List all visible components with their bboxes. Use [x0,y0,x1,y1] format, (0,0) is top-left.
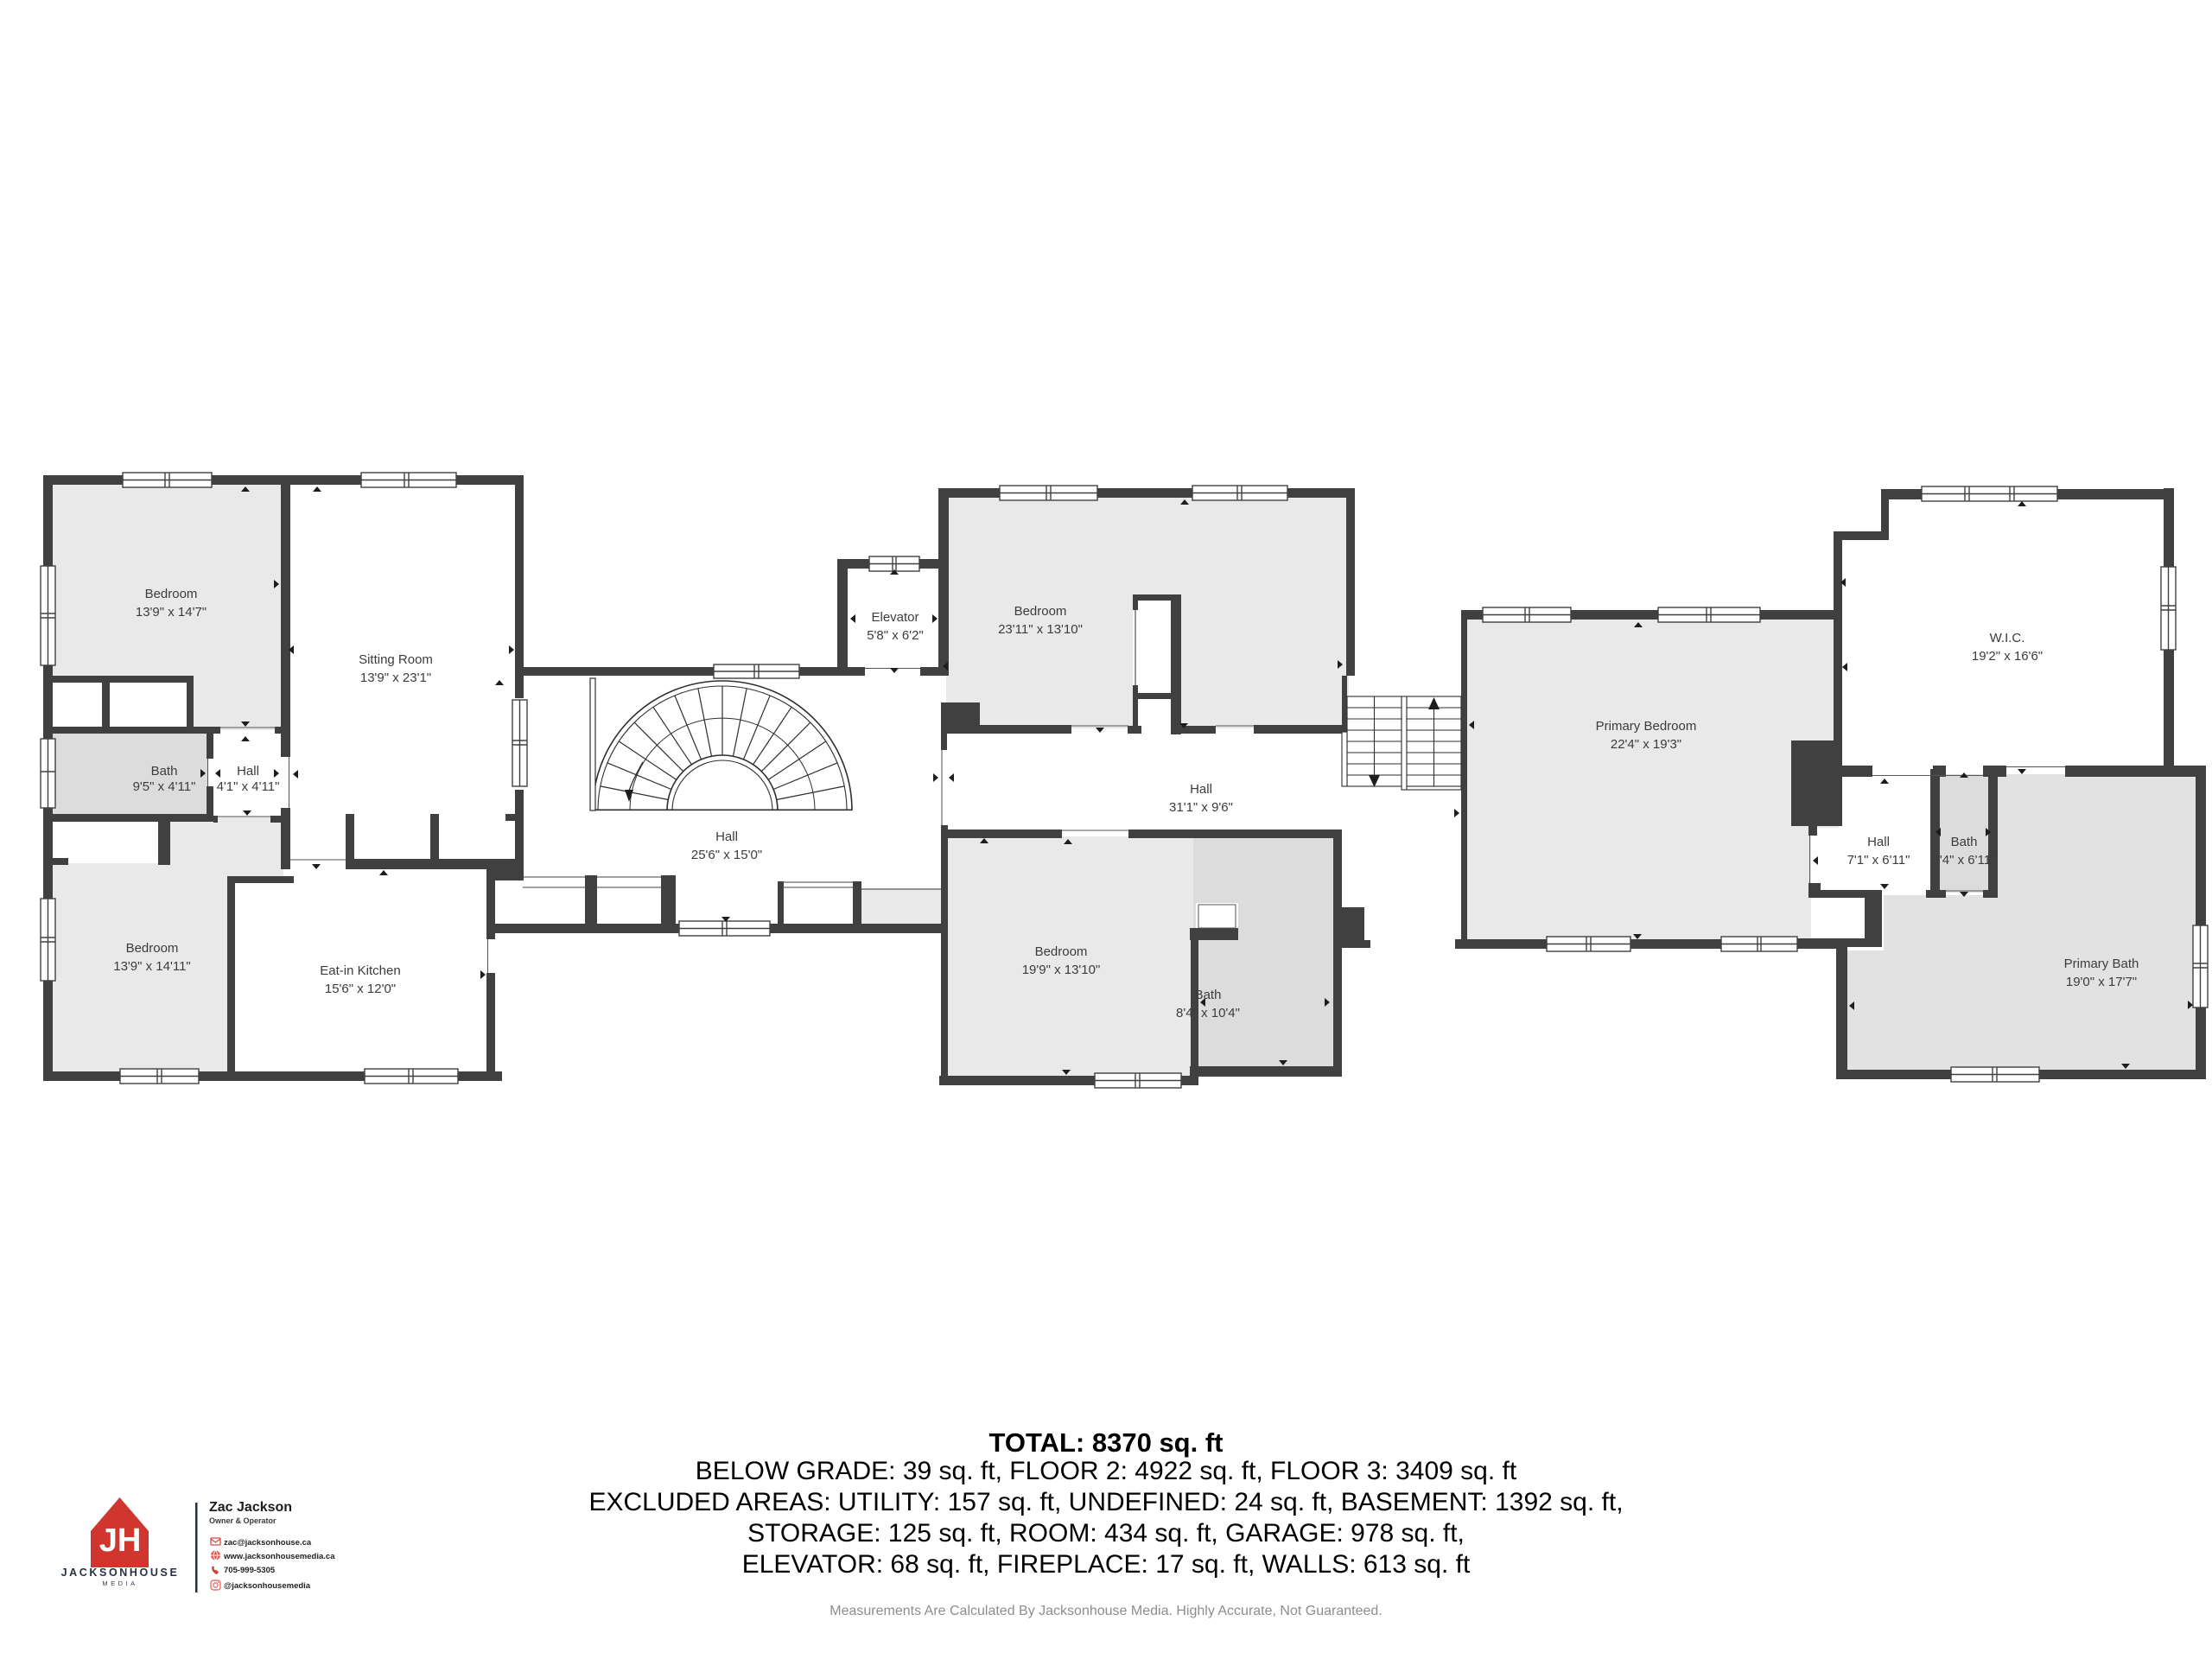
svg-text:9'5" x 4'11": 9'5" x 4'11" [133,779,196,794]
svg-text:Bedroom: Bedroom [1014,604,1067,619]
svg-text:Measurements Are Calculated By: Measurements Are Calculated By Jacksonho… [829,1604,1382,1618]
svg-text:19'9" x 13'10": 19'9" x 13'10" [1022,963,1101,977]
svg-text:31'1" x 9'6": 31'1" x 9'6" [1169,800,1233,815]
svg-text:19'2" x 16'6": 19'2" x 16'6" [1972,649,2043,664]
svg-text:Primary Bedroom: Primary Bedroom [1596,719,1697,734]
svg-text:Bedroom: Bedroom [145,587,198,601]
svg-text:BELOW GRADE: 39 sq. ft, FLOOR: BELOW GRADE: 39 sq. ft, FLOOR 2: 4922 sq… [696,1457,1517,1485]
svg-text:4'1" x 4'11": 4'1" x 4'11" [217,779,280,794]
svg-text:705-999-5305: 705-999-5305 [224,1566,276,1575]
svg-text:Hall: Hall [715,829,738,844]
svg-text:TOTAL: 8370 sq. ft: TOTAL: 8370 sq. ft [988,1427,1223,1458]
svg-text:15'6" x 12'0": 15'6" x 12'0" [325,982,396,996]
svg-text:Bath: Bath [1951,835,1978,849]
svg-text:Elevator: Elevator [871,610,918,625]
svg-text:13'9" x 14'11": 13'9" x 14'11" [113,959,191,974]
svg-text:Hall: Hall [237,764,259,779]
svg-text:8'4" x 10'4": 8'4" x 10'4" [1176,1006,1240,1020]
svg-text:Sitting Room: Sitting Room [359,652,433,667]
svg-text:Owner & Operator: Owner & Operator [209,1516,276,1525]
svg-text:Primary Bath: Primary Bath [2064,957,2139,971]
svg-text:Bedroom: Bedroom [126,941,179,956]
svg-text:3'4" x 6'11": 3'4" x 6'11" [1933,853,1996,868]
svg-text:5'8" x 6'2": 5'8" x 6'2" [867,628,924,643]
svg-text:Eat-in Kitchen: Eat-in Kitchen [320,963,400,978]
svg-text:19'0" x 17'7": 19'0" x 17'7" [2066,975,2137,989]
svg-text:EXCLUDED AREAS: UTILITY: 157 s: EXCLUDED AREAS: UTILITY: 157 sq. ft, UND… [588,1488,1623,1516]
svg-text:25'6" x 15'0": 25'6" x 15'0" [691,848,762,862]
svg-text:STORAGE: 125 sq. ft, ROOM: 434: STORAGE: 125 sq. ft, ROOM: 434 sq. ft, G… [747,1519,1465,1548]
svg-text:W.I.C.: W.I.C. [1990,631,2025,645]
svg-text:@jacksonhousemedia: @jacksonhousemedia [224,1581,311,1591]
svg-text:Bath: Bath [151,764,178,779]
svg-text:Hall: Hall [1190,782,1212,797]
svg-text:Zac Jackson: Zac Jackson [209,1500,292,1515]
svg-text:22'4" x 19'3": 22'4" x 19'3" [1611,737,1681,752]
svg-text:7'1" x 6'11": 7'1" x 6'11" [1847,853,1910,868]
svg-text:www.jacksonhousemedia.ca: www.jacksonhousemedia.ca [223,1552,335,1561]
svg-text:JACKSONHOUSE: JACKSONHOUSE [61,1567,180,1579]
svg-text:zac@jacksonhouse.ca: zac@jacksonhouse.ca [224,1538,312,1548]
svg-text:ELEVATOR: 68 sq. ft, FIREPLACE: ELEVATOR: 68 sq. ft, FIREPLACE: 17 sq. f… [742,1550,1471,1579]
svg-text:MEDIA: MEDIA [102,1580,137,1587]
svg-text:JH: JH [99,1522,142,1559]
svg-text:13'9" x 14'7": 13'9" x 14'7" [136,605,207,620]
svg-text:Hall: Hall [1867,835,1890,849]
svg-text:23'11" x 13'10": 23'11" x 13'10" [998,622,1083,637]
svg-text:13'9" x 23'1": 13'9" x 23'1" [360,671,431,685]
svg-text:Bedroom: Bedroom [1035,944,1088,959]
svg-text:Bath: Bath [1195,988,1222,1002]
